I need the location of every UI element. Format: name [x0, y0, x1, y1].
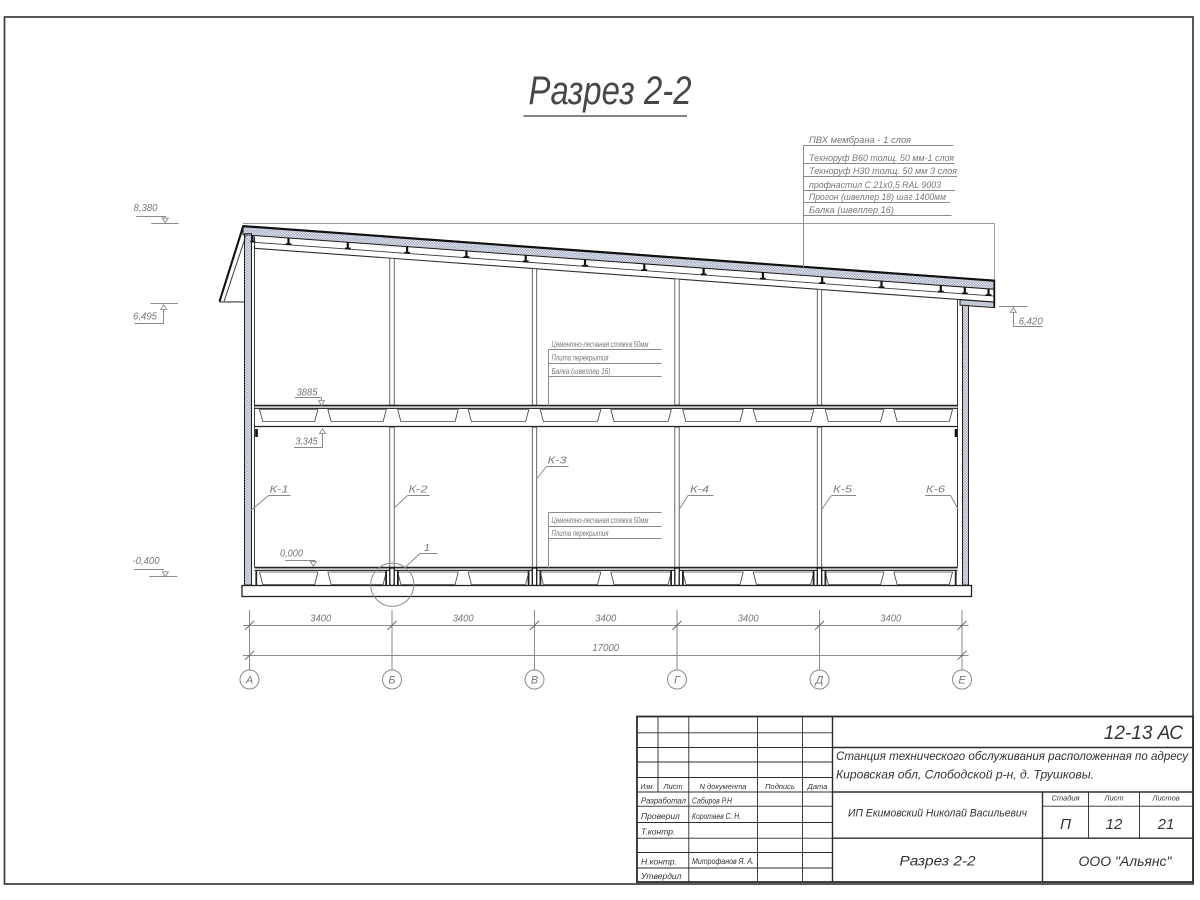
- svg-text:ИП Екимовский Николай Васильев: ИП Екимовский Николай Васильевич: [848, 808, 1027, 820]
- svg-text:Техноруф В60 толщ. 50 мм-1 сло: Техноруф В60 толщ. 50 мм-1 слоя: [809, 153, 954, 164]
- svg-text:Г: Г: [674, 675, 681, 687]
- svg-text:К-5: К-5: [833, 484, 852, 496]
- svg-text:Е: Е: [958, 675, 966, 687]
- svg-text:6,495: 6,495: [133, 311, 157, 323]
- svg-text:К-1: К-1: [270, 484, 289, 496]
- svg-text:3400: 3400: [738, 614, 759, 625]
- svg-text:6,420: 6,420: [1019, 316, 1043, 328]
- svg-text:К-6: К-6: [926, 484, 945, 496]
- svg-text:Д: Д: [814, 675, 824, 687]
- svg-text:Разрез 2-2: Разрез 2-2: [900, 854, 977, 869]
- svg-text:8,380: 8,380: [134, 202, 158, 214]
- svg-text:профнастил С 21х0,5 RAL 9003: профнастил С 21х0,5 RAL 9003: [809, 180, 942, 191]
- svg-text:1: 1: [424, 542, 430, 554]
- svg-text:3400: 3400: [880, 614, 901, 625]
- svg-text:3885: 3885: [297, 388, 318, 399]
- svg-text:К-4: К-4: [690, 484, 709, 496]
- svg-text:3400: 3400: [595, 614, 616, 625]
- svg-text:Проверил: Проверил: [641, 811, 680, 821]
- svg-text:ООО "Альянс": ООО "Альянс": [1079, 853, 1173, 869]
- svg-text:Цементно-песчаная стяжка 50мм: Цементно-песчаная стяжка 50мм: [552, 515, 649, 525]
- svg-text:3,345: 3,345: [296, 437, 318, 448]
- svg-text:Лист: Лист: [1103, 794, 1123, 803]
- svg-text:Н.контр.: Н.контр.: [641, 857, 677, 867]
- svg-text:Б: Б: [388, 675, 395, 687]
- svg-text:Утвердил: Утвердил: [640, 871, 682, 881]
- svg-text:Т.контр.: Т.контр.: [641, 827, 675, 837]
- svg-text:К-3: К-3: [548, 455, 567, 467]
- svg-text:17000: 17000: [592, 643, 619, 654]
- svg-text:Плита перекрытия: Плита перекрытия: [552, 353, 609, 363]
- svg-text:К-2: К-2: [409, 484, 428, 496]
- svg-text:Станция технического обслужива: Станция технического обслуживания распол…: [836, 751, 1189, 763]
- svg-text:21: 21: [1157, 816, 1175, 833]
- svg-text:Кировская обл, Слободской р-н,: Кировская обл, Слободской р-н, д. Трушко…: [836, 770, 1094, 782]
- svg-text:Балка (швеллер 16): Балка (швеллер 16): [552, 366, 611, 376]
- svg-text:А: А: [245, 675, 253, 687]
- svg-text:Прогон (швеллер 18) шаг 1400мм: Прогон (швеллер 18) шаг 1400мм: [809, 192, 946, 203]
- svg-text:Сабиров Р.Н: Сабиров Р.Н: [692, 797, 732, 806]
- svg-text:Лист: Лист: [662, 782, 682, 791]
- svg-text:Разрез 2-2: Разрез 2-2: [529, 69, 692, 113]
- svg-text:Подпись: Подпись: [765, 782, 795, 791]
- svg-text:Митрофанов Я. А.: Митрофанов Я. А.: [692, 857, 754, 866]
- svg-text:3400: 3400: [453, 614, 474, 625]
- svg-text:N документа: N документа: [700, 782, 747, 791]
- svg-text:Стадия: Стадия: [1051, 794, 1079, 803]
- svg-text:Листов: Листов: [1151, 794, 1179, 803]
- svg-text:Балка (швеллер 16): Балка (швеллер 16): [809, 205, 894, 216]
- svg-text:П: П: [1060, 816, 1071, 833]
- svg-text:Цементно-песчаная стяжка 50мм: Цементно-песчаная стяжка 50мм: [552, 339, 649, 349]
- svg-text:Техноруф Н30 толщ. 50 мм 3 сло: Техноруф Н30 толщ. 50 мм 3 слоя: [809, 166, 957, 177]
- svg-text:Дата: Дата: [807, 782, 828, 791]
- svg-text:12: 12: [1106, 816, 1123, 833]
- svg-text:Коротаев С. Н.: Коротаев С. Н.: [692, 812, 741, 821]
- svg-text:3400: 3400: [310, 614, 331, 625]
- svg-text:Плита перекрытия: Плита перекрытия: [552, 528, 609, 538]
- svg-text:Разработал: Разработал: [641, 796, 686, 806]
- svg-text:ПВХ мембрана - 1 слоя: ПВХ мембрана - 1 слоя: [809, 135, 911, 146]
- svg-text:Изм.: Изм.: [641, 782, 655, 791]
- svg-text:0,000: 0,000: [280, 549, 303, 560]
- svg-text:-0,400: -0,400: [133, 555, 160, 567]
- svg-text:12-13 АС: 12-13 АС: [1104, 723, 1183, 744]
- svg-text:В: В: [531, 675, 538, 687]
